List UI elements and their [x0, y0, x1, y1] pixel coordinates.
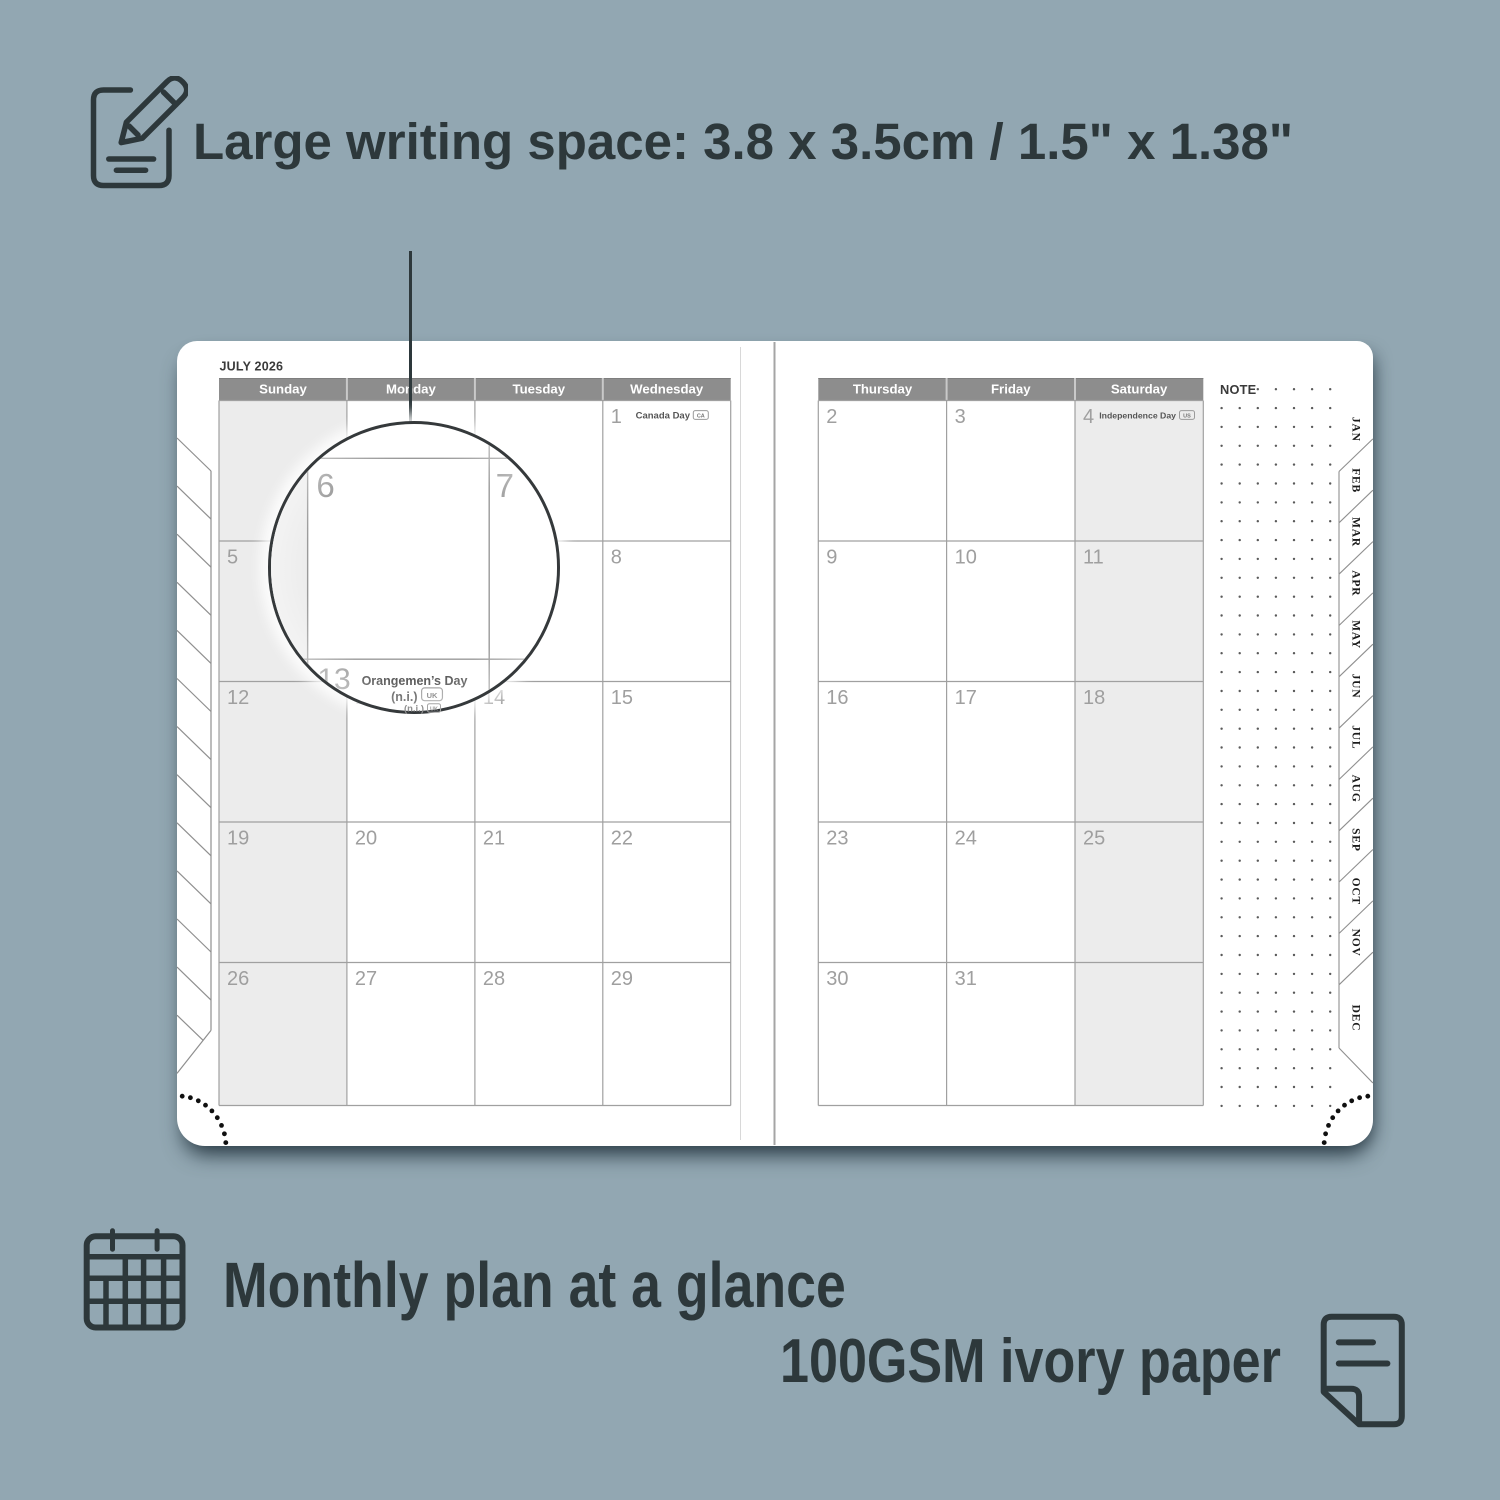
svg-text:UK: UK [430, 707, 438, 713]
svg-text:(n.i.): (n.i.) [404, 704, 424, 715]
